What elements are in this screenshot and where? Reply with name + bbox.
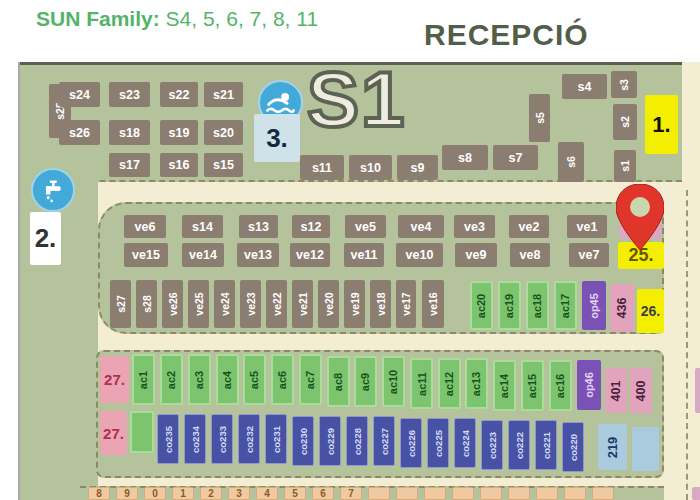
plot-ve20: ve20 <box>318 280 339 328</box>
plot-ac8: ac8 <box>327 356 350 407</box>
plot-empty <box>424 487 446 500</box>
plot-s16: s16 <box>160 153 198 177</box>
plot-ve7: ve7 <box>569 243 609 267</box>
plot-ve16: ve16 <box>422 280 444 328</box>
plot-co224: co224 <box>454 418 476 468</box>
plot-8: 8 <box>88 487 110 500</box>
plot-ve4: ve4 <box>398 215 444 238</box>
plot-s28: s28 <box>136 280 157 328</box>
marker-1: 1. <box>645 95 678 154</box>
plot-s12: s12 <box>292 215 330 238</box>
plot-op46: op46 <box>577 360 601 410</box>
plot-co231: co231 <box>265 414 287 464</box>
plot-s18: s18 <box>109 120 150 145</box>
plot-empty <box>396 487 418 500</box>
plot-co223: co223 <box>481 420 503 470</box>
plot-ac10: ac10 <box>382 356 405 407</box>
plot-ac20: ac20 <box>470 281 493 330</box>
plot-ve6: ve6 <box>124 215 166 238</box>
plot-co222: co222 <box>508 420 530 470</box>
water-tap-icon <box>31 168 75 212</box>
plot-ve18: ve18 <box>370 280 391 328</box>
plot-co227: co227 <box>373 416 395 466</box>
plot-ve5: ve5 <box>345 215 386 238</box>
plot-empty <box>130 411 154 453</box>
plot-co228: co228 <box>346 416 368 466</box>
plot-co225: co225 <box>427 418 449 468</box>
plot-0: 0 <box>144 487 166 500</box>
plot-s17: s17 <box>109 153 150 177</box>
plot-s7: s7 <box>493 145 538 170</box>
plot-ac19: ac19 <box>498 281 521 330</box>
plot-ve26: ve26 <box>162 280 183 328</box>
plot-ve9: ve9 <box>455 243 497 267</box>
plot-ac7: ac7 <box>299 354 322 405</box>
plot-ac14: ac14 <box>493 360 516 411</box>
plot-s13: s13 <box>239 215 278 238</box>
plot-s3: s3 <box>611 71 637 98</box>
plot-ve14: ve14 <box>182 243 224 267</box>
plot-ac15: ac15 <box>521 360 544 411</box>
plot-s15: s15 <box>204 153 243 177</box>
plot-empty <box>592 487 614 500</box>
plot-empty <box>480 487 502 500</box>
plot-ve17: ve17 <box>396 280 416 328</box>
plot-co229: co229 <box>319 416 341 466</box>
plot-ac13: ac13 <box>465 358 488 409</box>
plot-ve19: ve19 <box>344 280 365 328</box>
plot-s4: s4 <box>562 74 607 99</box>
plot-ve2: ve2 <box>509 215 549 238</box>
plot-436: 436 <box>610 284 634 332</box>
plot-ve12: ve12 <box>290 243 330 267</box>
plot-s10: s10 <box>349 155 392 180</box>
plot-ve23: ve23 <box>240 280 261 328</box>
plot-3: 3 <box>228 487 250 500</box>
page-title: SUN Family: S4, 5, 6, 7, 8, 11 <box>36 7 318 31</box>
plot-s21: s21 <box>204 82 243 107</box>
plot-s6: s6 <box>558 142 584 182</box>
marker-2: 2. <box>30 212 61 265</box>
right-road-dashes <box>686 190 688 500</box>
marker-27: 27. <box>100 411 127 455</box>
plot-s5: s5 <box>529 94 550 142</box>
plot-401: 401 <box>605 368 627 413</box>
page-title-bold: SUN Family: <box>36 7 160 30</box>
plot-s11: s11 <box>300 155 344 180</box>
plot-ve15: ve15 <box>124 243 168 267</box>
plot-ve3: ve3 <box>454 215 495 238</box>
plot-ac4: ac4 <box>216 354 239 405</box>
plot-empty <box>695 368 700 413</box>
plot-s1: s1 <box>614 150 636 182</box>
tap-glyph <box>37 174 69 206</box>
plot-co235: co235 <box>157 414 179 464</box>
plot-219: 219 <box>598 424 627 470</box>
plot-ve8: ve8 <box>510 243 550 267</box>
plot-s24: s24 <box>59 82 100 107</box>
plot-empty <box>632 427 659 471</box>
marker-26: 26. <box>637 289 664 333</box>
plot-co233: co233 <box>211 414 233 464</box>
plot-s9: s9 <box>397 155 438 180</box>
plot-s19: s19 <box>160 120 198 145</box>
plot-ac9: ac9 <box>354 356 377 407</box>
plot-empty <box>452 487 474 500</box>
plot-op45: op45 <box>582 281 606 330</box>
plot-2: 2 <box>200 487 222 500</box>
plot-empty <box>692 487 700 500</box>
plot-empty <box>564 487 586 500</box>
plot-ve1: ve1 <box>567 215 607 238</box>
plot-ac12: ac12 <box>438 358 461 409</box>
marker-3: 3. <box>254 114 300 162</box>
plot-9: 9 <box>116 487 138 500</box>
plot-s14: s14 <box>182 215 223 238</box>
plot-co232: co232 <box>238 414 260 464</box>
plot-s22: s22 <box>160 82 198 107</box>
plot-ve25: ve25 <box>188 280 209 328</box>
plot-4: 4 <box>256 487 278 500</box>
plot-co226: co226 <box>400 418 422 468</box>
plot-ve24: ve24 <box>214 280 235 328</box>
plot-empty <box>508 487 530 500</box>
location-pin-icon <box>616 184 664 254</box>
plot-co220: co220 <box>562 422 584 472</box>
plot-s27: s27 <box>110 280 131 328</box>
plot-ve22: ve22 <box>266 280 287 328</box>
plot-empty <box>536 487 558 500</box>
plot-5: 5 <box>284 487 306 500</box>
plot-ac6: ac6 <box>271 354 294 405</box>
plot-co234: co234 <box>184 414 206 464</box>
plot-ac16: ac16 <box>549 360 572 411</box>
plot-ve10: ve10 <box>396 243 443 267</box>
plot-ac18: ac18 <box>526 281 549 330</box>
zone-label-s1: S1 <box>307 62 406 145</box>
plot-ve13: ve13 <box>237 243 279 267</box>
campsite-map: S1 s25s24s23s22s21s26s18s19s20s17s16s15s… <box>18 62 700 500</box>
plot-ac11: ac11 <box>410 358 433 409</box>
plot-ac5: ac5 <box>243 354 266 405</box>
plot-ac2: ac2 <box>160 354 183 405</box>
plot-ac17: ac17 <box>554 281 577 330</box>
plot-empty <box>368 487 390 500</box>
plot-s20: s20 <box>204 120 243 145</box>
plot-ac3: ac3 <box>188 354 211 405</box>
marker-27: 27. <box>100 356 129 403</box>
plot-1: 1 <box>172 487 194 500</box>
plot-s8: s8 <box>442 145 488 170</box>
plot-co230: co230 <box>292 416 314 466</box>
plot-6: 6 <box>312 487 334 500</box>
plot-ve21: ve21 <box>292 280 313 328</box>
plot-s23: s23 <box>109 82 150 107</box>
reception-label: RECEPCIÓ <box>424 18 589 52</box>
plot-ac1: ac1 <box>132 354 155 405</box>
plot-400: 400 <box>630 368 652 413</box>
plot-s2: s2 <box>613 104 637 140</box>
page-title-rest: S4, 5, 6, 7, 8, 11 <box>160 7 318 30</box>
plot-co221: co221 <box>535 420 557 470</box>
plot-ve11: ve11 <box>344 243 384 267</box>
plot-7: 7 <box>340 487 362 500</box>
plot-s26: s26 <box>59 120 100 145</box>
